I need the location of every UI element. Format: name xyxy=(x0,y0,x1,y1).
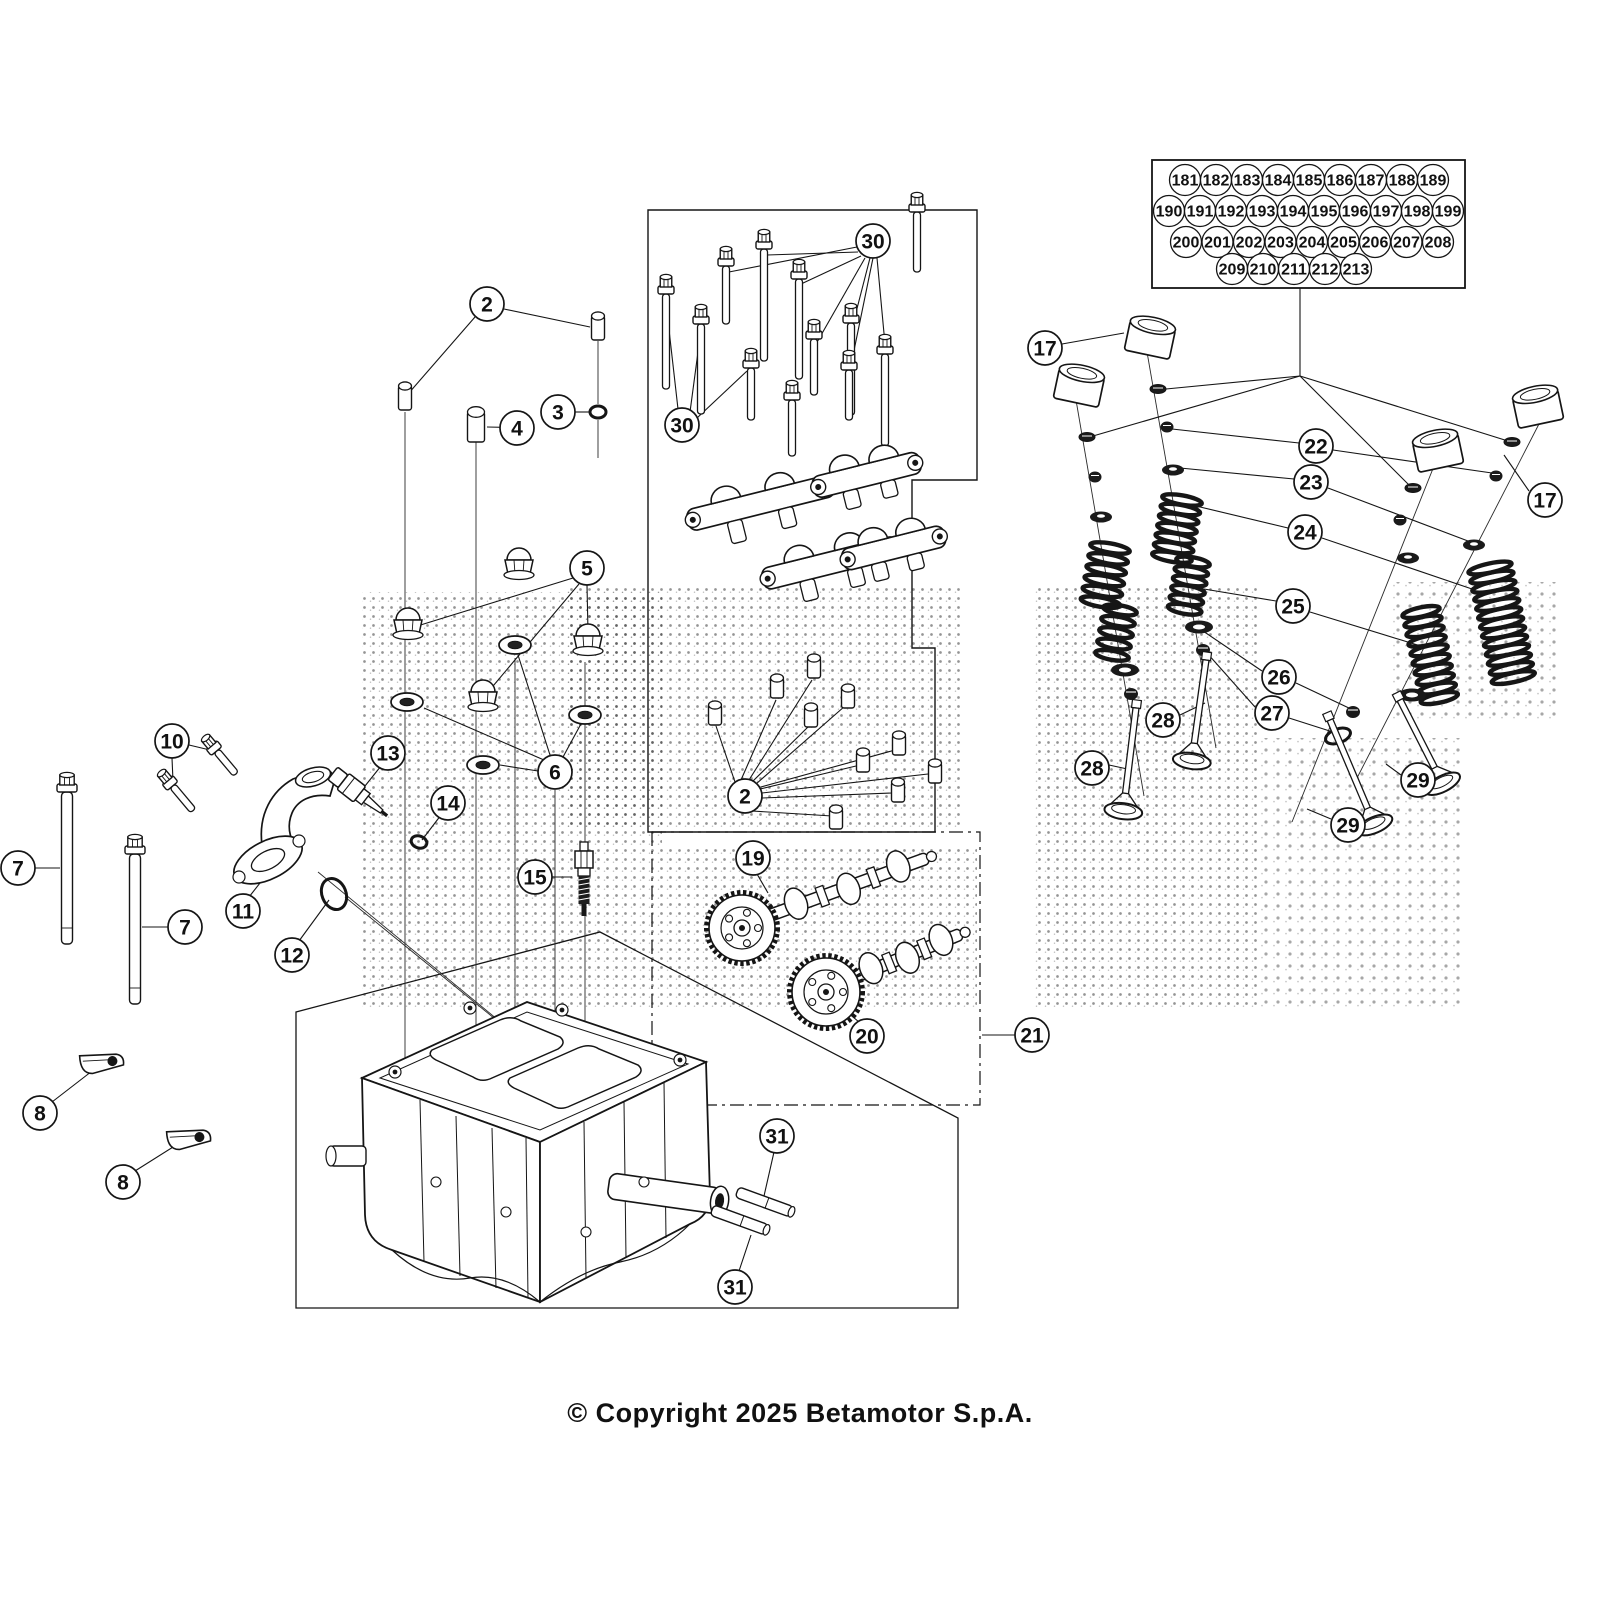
watermark-patch xyxy=(1035,585,1260,1010)
parts-diagram-page: 2234567788101112131415171719202122232425… xyxy=(0,0,1600,1600)
callout-label: 11 xyxy=(232,901,255,924)
bolt-shank xyxy=(846,370,853,420)
part-dowel xyxy=(892,778,905,802)
callout-7[interactable]: 7 xyxy=(168,910,202,944)
hex-top xyxy=(793,259,805,264)
head-side-boss-end xyxy=(326,1146,336,1166)
acorn-flange xyxy=(573,647,603,656)
part-bolt-small xyxy=(199,732,242,779)
seat-hole xyxy=(1406,693,1418,698)
gear-hole xyxy=(726,934,733,941)
part-bolt xyxy=(877,334,893,446)
callout-26[interactable]: 26 xyxy=(1262,660,1296,694)
head-bolt-hole-inner xyxy=(393,1070,398,1075)
grid-number: 194 xyxy=(1280,204,1307,221)
bolt-shank xyxy=(723,266,730,324)
head-boss xyxy=(581,1227,591,1237)
grid-number: 190 xyxy=(1156,204,1183,221)
callout-label: 22 xyxy=(1304,436,1327,459)
part-stem-seal xyxy=(1346,706,1360,718)
gear-hole xyxy=(809,998,816,1005)
leader-line xyxy=(767,252,858,255)
plug-terminal xyxy=(580,842,588,851)
part-dowel xyxy=(709,701,722,725)
part-tappet-bucket xyxy=(1411,426,1464,473)
part-washer xyxy=(467,756,499,774)
callout-label: 6 xyxy=(549,762,561,785)
rocker-foot xyxy=(907,552,925,571)
callout-27[interactable]: 27 xyxy=(1255,696,1289,730)
retainer-hl xyxy=(1470,542,1478,546)
part-washer xyxy=(499,636,531,654)
callout-label: 26 xyxy=(1267,667,1290,690)
rocker-bar xyxy=(840,525,947,572)
watermark-dots xyxy=(362,582,1560,1010)
callout-label: 13 xyxy=(376,743,399,766)
head-boss xyxy=(431,1177,441,1187)
grid-part-181[interactable]: 181 xyxy=(1170,165,1201,196)
part-bolt xyxy=(693,304,709,414)
part-spring-retainer xyxy=(1463,540,1485,551)
grid-number: 183 xyxy=(1234,173,1261,190)
part-tappet-bucket xyxy=(1511,382,1564,429)
part-bolt xyxy=(791,259,807,379)
rocker-foot xyxy=(843,489,862,510)
callout-label: 28 xyxy=(1151,710,1175,733)
grid-part-204[interactable]: 204 xyxy=(1297,227,1328,258)
part-tappet-bucket xyxy=(1124,313,1177,360)
callout-3[interactable]: 3 xyxy=(541,395,575,429)
head-bolt-hole-inner xyxy=(560,1008,565,1013)
grid-part-212[interactable]: 212 xyxy=(1310,254,1341,285)
part-dowel xyxy=(893,731,906,755)
rocker-foot xyxy=(871,561,890,582)
hex-top xyxy=(720,246,732,251)
callout-28[interactable]: 28 xyxy=(1146,703,1180,737)
grid-number: 209 xyxy=(1219,262,1246,279)
callout-label: 5 xyxy=(581,558,593,581)
grid-part-201[interactable]: 201 xyxy=(1202,227,1233,258)
callout-20[interactable]: 20 xyxy=(850,1019,884,1053)
callout-label: 25 xyxy=(1281,596,1305,619)
washer-hole xyxy=(476,761,490,769)
callout-17[interactable]: 17 xyxy=(1528,483,1562,517)
grid-number: 182 xyxy=(1203,173,1230,190)
grid-part-209[interactable]: 209 xyxy=(1217,254,1248,285)
grid-part-186[interactable]: 186 xyxy=(1325,165,1356,196)
grid-number: 212 xyxy=(1312,262,1339,279)
grid-part-197[interactable]: 197 xyxy=(1371,196,1402,227)
hex-top xyxy=(845,303,857,308)
part-bolt xyxy=(743,348,759,420)
grid-number: 202 xyxy=(1236,235,1263,252)
part-dowel xyxy=(399,382,412,410)
grid-part-191[interactable]: 191 xyxy=(1185,196,1216,227)
grid-part-208[interactable]: 208 xyxy=(1423,227,1454,258)
callout-label: 3 xyxy=(552,402,564,425)
leader-line xyxy=(408,317,475,394)
gear-hole xyxy=(743,909,750,916)
part-valve-shim xyxy=(1405,484,1421,493)
bolt-shank xyxy=(796,279,803,379)
callout-label: 21 xyxy=(1020,1025,1044,1048)
callout-label: 31 xyxy=(723,1277,747,1300)
callout-25[interactable]: 25 xyxy=(1276,589,1310,623)
hex-top xyxy=(879,334,891,339)
part-washer xyxy=(391,693,423,711)
callout-label: 4 xyxy=(511,418,523,441)
grid-number: 213 xyxy=(1343,262,1370,279)
part-dowel xyxy=(468,407,485,442)
callout-17[interactable]: 17 xyxy=(1028,331,1062,365)
callout-label: 31 xyxy=(765,1126,789,1149)
hex-top xyxy=(128,834,142,839)
grid-part-199[interactable]: 199 xyxy=(1433,196,1464,227)
part-spring-retainer xyxy=(1397,553,1419,564)
part-number-grid: 1811821831841851861871881891901911921931… xyxy=(1152,160,1465,288)
grid-part-189[interactable]: 189 xyxy=(1418,165,1449,196)
shim-disc xyxy=(1079,433,1095,442)
callout-29[interactable]: 29 xyxy=(1331,808,1365,842)
head-boss xyxy=(639,1177,649,1187)
shim-disc xyxy=(1150,385,1166,394)
part-oring xyxy=(590,406,606,418)
plug-electrode xyxy=(582,904,587,916)
callout-12[interactable]: 12 xyxy=(275,938,309,972)
grid-part-194[interactable]: 194 xyxy=(1278,196,1309,227)
grid-leader-fan xyxy=(1300,376,1508,441)
grid-number: 203 xyxy=(1267,235,1294,252)
grid-part-192[interactable]: 192 xyxy=(1216,196,1247,227)
gear-center xyxy=(823,989,829,995)
plug-hex xyxy=(575,851,593,868)
cotter-body xyxy=(1161,422,1174,433)
grid-number: 189 xyxy=(1420,173,1447,190)
callout-11[interactable]: 11 xyxy=(226,894,260,928)
part-acorn-nut xyxy=(504,548,534,580)
part-valve-spring xyxy=(1151,492,1202,565)
dowel-top xyxy=(771,674,784,682)
part-bolt xyxy=(784,380,800,456)
callout-5[interactable]: 5 xyxy=(570,551,604,585)
callout-7[interactable]: 7 xyxy=(1,851,35,885)
callout-29[interactable]: 29 xyxy=(1401,763,1435,797)
hex-top xyxy=(695,304,707,309)
callout-14[interactable]: 14 xyxy=(431,786,465,820)
leader-line xyxy=(1328,488,1468,541)
part-washer xyxy=(569,706,601,724)
part-dowel xyxy=(808,654,821,678)
callout-6[interactable]: 6 xyxy=(538,755,572,789)
part-rocker-arm xyxy=(679,460,843,554)
callout-label: 29 xyxy=(1406,770,1429,793)
grid-part-183[interactable]: 183 xyxy=(1232,165,1263,196)
grid-number: 205 xyxy=(1330,235,1357,252)
grid-number: 204 xyxy=(1299,235,1326,252)
callout-30[interactable]: 30 xyxy=(856,224,890,258)
gear-hole xyxy=(726,915,733,922)
part-spring-seat xyxy=(1185,621,1213,634)
washer-hole xyxy=(400,698,414,706)
part-water-outlet-elbow xyxy=(226,763,333,893)
part-spring-seat xyxy=(1111,664,1139,677)
bolt-shank xyxy=(214,749,239,776)
grid-number: 187 xyxy=(1358,173,1385,190)
head-bolt-hole-inner xyxy=(468,1006,473,1011)
callout-label: 24 xyxy=(1293,522,1317,545)
callout-24[interactable]: 24 xyxy=(1288,515,1322,549)
grid-part-200[interactable]: 200 xyxy=(1171,227,1202,258)
gear-hole xyxy=(828,1005,835,1012)
grid-part-184[interactable]: 184 xyxy=(1263,165,1294,196)
leader-line xyxy=(1196,506,1288,528)
dowel-top xyxy=(805,703,818,711)
callout-22[interactable]: 22 xyxy=(1299,429,1333,463)
dowel-top xyxy=(830,805,843,813)
part-bolt xyxy=(756,229,772,361)
rocker-foot xyxy=(880,479,899,498)
grid-part-203[interactable]: 203 xyxy=(1265,227,1296,258)
leader-line xyxy=(1296,683,1351,709)
grid-number: 191 xyxy=(1187,204,1214,221)
callout-label: 10 xyxy=(160,731,183,754)
bolt-shank xyxy=(663,294,670,389)
head-bolt-hole-inner xyxy=(678,1058,683,1063)
shim-disc xyxy=(1405,484,1421,493)
part-rocker-arm xyxy=(805,437,930,517)
grid-part-198[interactable]: 198 xyxy=(1402,196,1433,227)
callout-19[interactable]: 19 xyxy=(736,841,770,875)
leader-line xyxy=(739,1235,751,1271)
flange-ear xyxy=(233,871,245,883)
callout-8[interactable]: 8 xyxy=(23,1096,57,1130)
grid-part-193[interactable]: 193 xyxy=(1247,196,1278,227)
grid-number: 192 xyxy=(1218,204,1245,221)
cotter-body xyxy=(1089,472,1102,483)
bolt-shank xyxy=(811,339,818,395)
oring-ring xyxy=(317,875,351,914)
hex-top xyxy=(60,772,74,777)
grid-number: 185 xyxy=(1296,173,1323,190)
grid-part-195[interactable]: 195 xyxy=(1309,196,1340,227)
part-bolt xyxy=(909,192,925,272)
callout-label: 19 xyxy=(741,848,764,871)
grid-part-185[interactable]: 185 xyxy=(1294,165,1325,196)
acorn-dome xyxy=(507,548,531,560)
head-boss xyxy=(501,1207,511,1217)
grid-number: 199 xyxy=(1435,204,1462,221)
grid-number: 193 xyxy=(1249,204,1276,221)
grid-number: 195 xyxy=(1311,204,1338,221)
part-oring xyxy=(317,875,351,914)
callout-4[interactable]: 4 xyxy=(500,411,534,445)
dowel-top xyxy=(892,778,905,786)
callout-label: 12 xyxy=(280,945,303,968)
callout-2[interactable]: 2 xyxy=(728,779,762,813)
callout-label: 8 xyxy=(34,1103,46,1126)
gear-center xyxy=(739,925,745,931)
dowel-top xyxy=(929,759,942,767)
callout-label: 20 xyxy=(855,1026,878,1049)
callout-label: 30 xyxy=(670,415,693,438)
dowel-top xyxy=(857,748,870,756)
grid-part-210[interactable]: 210 xyxy=(1248,254,1279,285)
rocker-bar xyxy=(811,451,923,499)
gear-hole xyxy=(809,979,816,986)
dowel-top xyxy=(399,382,412,390)
part-tappet-bucket xyxy=(1053,361,1106,408)
bolt-shank xyxy=(761,249,768,361)
callout-label: 2 xyxy=(481,294,493,317)
part-stud xyxy=(57,772,77,944)
callout-31[interactable]: 31 xyxy=(760,1119,794,1153)
rocker-foot xyxy=(727,519,747,544)
dowel-top xyxy=(808,654,821,662)
grid-number: 198 xyxy=(1404,204,1431,221)
grid-part-211[interactable]: 211 xyxy=(1279,254,1310,285)
grid-part-213[interactable]: 213 xyxy=(1341,254,1372,285)
callout-label: 7 xyxy=(12,858,24,881)
callout-31[interactable]: 31 xyxy=(718,1270,752,1304)
part-dowel xyxy=(805,703,818,727)
grid-part-202[interactable]: 202 xyxy=(1234,227,1265,258)
callout-8[interactable]: 8 xyxy=(106,1165,140,1199)
part-valve-cotter xyxy=(1490,471,1503,482)
plug-shoulder xyxy=(578,868,590,876)
stud-shank xyxy=(62,792,73,944)
part-bolt xyxy=(658,274,674,389)
part-cam-chain-guide xyxy=(79,1047,125,1075)
callout-label: 30 xyxy=(861,231,884,254)
bolt-shank xyxy=(170,784,196,813)
gear-hole xyxy=(828,972,835,979)
callout-label: 14 xyxy=(436,793,460,816)
callout-13[interactable]: 13 xyxy=(371,736,405,770)
callout-28[interactable]: 28 xyxy=(1075,751,1109,785)
dowel-top xyxy=(842,684,855,692)
seat-hole xyxy=(1193,625,1205,630)
callout-10[interactable]: 10 xyxy=(155,724,189,758)
retainer-hl xyxy=(1404,555,1412,559)
bolt-shank xyxy=(748,368,755,420)
hex-top xyxy=(808,319,820,324)
callout-label: 17 xyxy=(1033,338,1056,361)
part-stem-seal xyxy=(1124,688,1138,700)
grid-part-187[interactable]: 187 xyxy=(1356,165,1387,196)
callout-label: 17 xyxy=(1533,490,1556,513)
seal-body xyxy=(1346,706,1360,718)
callout-label: 23 xyxy=(1299,472,1322,495)
part-stud xyxy=(125,834,145,1004)
part-dowel xyxy=(929,759,942,783)
callout-label: 27 xyxy=(1260,703,1283,726)
rocker-foot xyxy=(778,506,797,529)
grid-number: 201 xyxy=(1204,235,1231,252)
part-dowel xyxy=(842,684,855,708)
callout-label: 29 xyxy=(1336,815,1359,838)
callout-2[interactable]: 2 xyxy=(470,287,504,321)
part-valve-cotter xyxy=(1089,472,1102,483)
pin-body xyxy=(710,1205,768,1235)
retainer-hl xyxy=(1097,514,1105,518)
grid-number: 208 xyxy=(1425,235,1452,252)
part-valve-shim xyxy=(1504,438,1520,447)
grid-number: 200 xyxy=(1173,235,1200,252)
grid-part-182[interactable]: 182 xyxy=(1201,165,1232,196)
callout-15[interactable]: 15 xyxy=(518,860,552,894)
bolt-shank xyxy=(882,354,889,446)
hex-top xyxy=(758,229,770,234)
acorn-flange xyxy=(393,631,423,640)
grid-part-207[interactable]: 207 xyxy=(1391,227,1422,258)
seal-body xyxy=(1124,688,1138,700)
hex-top xyxy=(786,380,798,385)
grid-number: 211 xyxy=(1281,262,1307,279)
bolt-shank xyxy=(914,212,921,272)
part-cylinder-head xyxy=(326,1002,731,1302)
part-dowel xyxy=(592,312,605,340)
dowel-top xyxy=(468,407,485,418)
callout-label: 8 xyxy=(117,1172,129,1195)
leader-line xyxy=(1180,468,1294,479)
callout-30[interactable]: 30 xyxy=(665,408,699,442)
part-valve-shim xyxy=(1150,385,1166,394)
part-dowel xyxy=(771,674,784,698)
part-dowel-pin xyxy=(710,1205,771,1236)
leader-line xyxy=(1172,429,1299,443)
part-spring-retainer xyxy=(1090,512,1112,523)
grid-number: 186 xyxy=(1327,173,1354,190)
grid-leader-fan xyxy=(1166,376,1300,389)
grid-part-206[interactable]: 206 xyxy=(1360,227,1391,258)
callout-21[interactable]: 21 xyxy=(1015,1018,1049,1052)
grid-number: 210 xyxy=(1250,262,1277,279)
callout-label: 28 xyxy=(1080,758,1104,781)
leader-line xyxy=(1333,450,1492,473)
part-bolt xyxy=(718,246,734,324)
part-cam-chain-guide xyxy=(166,1123,212,1151)
callout-label: 2 xyxy=(739,786,751,809)
cotter-body xyxy=(1394,515,1407,526)
part-dowel xyxy=(830,805,843,829)
gear-hole xyxy=(755,925,762,932)
retainer-hl xyxy=(1169,467,1177,471)
leader-line xyxy=(299,900,329,941)
shim-disc xyxy=(1504,438,1520,447)
gear-hole xyxy=(743,940,750,947)
grid-part-188[interactable]: 188 xyxy=(1387,165,1418,196)
washer-hole xyxy=(578,711,592,719)
grid-part-196[interactable]: 196 xyxy=(1340,196,1371,227)
seat-hole xyxy=(1119,668,1131,673)
leader-line xyxy=(504,309,590,327)
oring-ring xyxy=(590,406,606,418)
hex-top xyxy=(745,348,757,353)
hex-top xyxy=(911,192,923,197)
acorn-flange xyxy=(468,703,498,712)
leader-line xyxy=(1062,333,1124,344)
grid-part-205[interactable]: 205 xyxy=(1328,227,1359,258)
hex-top xyxy=(660,274,672,279)
callout-23[interactable]: 23 xyxy=(1294,465,1328,499)
diagram-svg: 2234567788101112131415171719202122232425… xyxy=(0,0,1600,1600)
bolt-shank xyxy=(698,324,705,414)
part-dowel-pin xyxy=(735,1187,796,1218)
grid-number: 196 xyxy=(1342,204,1369,221)
part-dowel xyxy=(857,748,870,772)
grid-part-190[interactable]: 190 xyxy=(1154,196,1185,227)
part-bolt xyxy=(806,319,822,395)
